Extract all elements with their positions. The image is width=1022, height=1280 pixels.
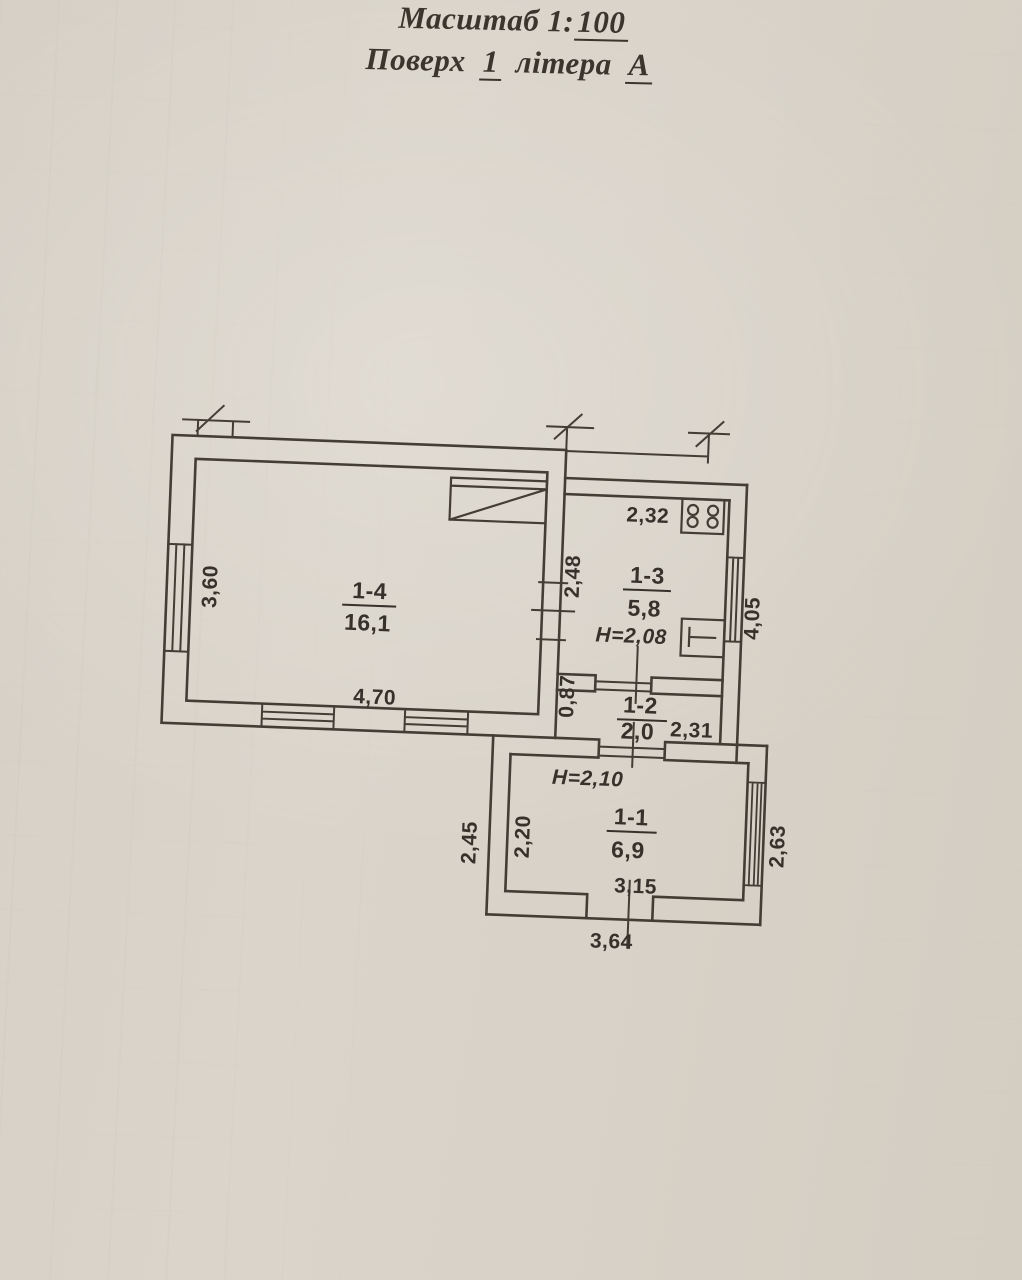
room-1-3-top-wall [565, 478, 747, 501]
room-label-underline [342, 605, 396, 607]
room-area: 2,0 [620, 717, 654, 744]
room-1-1-left-wall [486, 735, 511, 915]
dim-4-70: 4,70 [353, 685, 397, 710]
dim-2-45: 2,45 [457, 821, 482, 865]
dim-2-48: 2,48 [561, 555, 586, 599]
door-threshold-1-3-1-2 [597, 681, 649, 691]
sink-icon [680, 619, 724, 658]
room-label: 1-2 [623, 691, 659, 718]
dim-3-60: 3,60 [198, 565, 223, 609]
room-area: 5,8 [627, 595, 661, 622]
room-label-underline [607, 831, 657, 833]
room-label: 1-1 [613, 803, 649, 830]
dim-0-87: 0,87 [555, 674, 580, 718]
room-label: 1-4 [352, 577, 388, 604]
room-area: 16,1 [344, 609, 392, 637]
floor-plan: 1-4 16,1 3,60 4,70 2,32 1-3 5,8 2,48 4,0… [0, 0, 1022, 1280]
dim-2-32: 2,32 [626, 503, 670, 528]
stove-icon [681, 499, 724, 535]
room-area: 6,9 [611, 836, 645, 863]
dimension-labels: 1-4 16,1 3,60 4,70 2,32 1-3 5,8 2,48 4,0… [185, 487, 802, 960]
window-icon [404, 709, 468, 734]
dimension-tick [546, 413, 730, 463]
walls [154, 399, 780, 953]
dim-2-63: 2,63 [765, 825, 790, 869]
height-2-10: Н=2,10 [552, 766, 624, 792]
dim-3-15: 3,15 [614, 874, 658, 899]
dim-2-31: 2,31 [670, 718, 714, 743]
height-2-08: Н=2,08 [595, 623, 667, 649]
dim-4-05: 4,05 [740, 596, 765, 640]
window-icon [261, 704, 334, 730]
room-1-1-right-wall [742, 745, 767, 925]
room-label-underline [623, 589, 671, 591]
dimension-tick [183, 404, 250, 438]
niche-with-diagonal [450, 478, 548, 524]
room-label: 1-3 [630, 562, 666, 589]
dim-3-64: 3,64 [590, 929, 634, 954]
dim-2-20: 2,20 [511, 815, 536, 859]
